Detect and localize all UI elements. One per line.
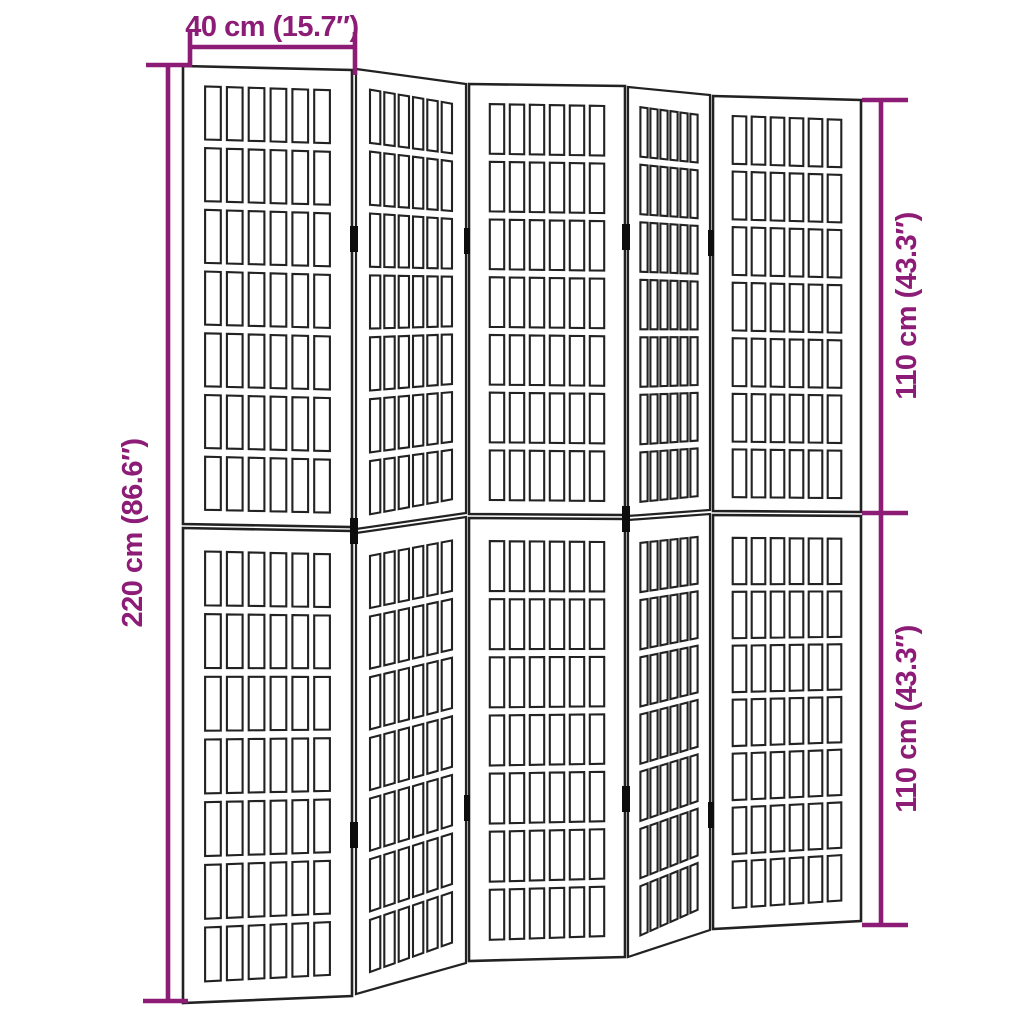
grid-cell: [640, 107, 647, 157]
grid-cell: [227, 149, 243, 203]
grid-cell: [809, 592, 823, 638]
grid-cell: [227, 272, 243, 326]
grid-cell: [828, 175, 842, 223]
grid-cell: [249, 552, 265, 606]
grid-cell: [570, 887, 584, 937]
grid-cell: [828, 697, 842, 743]
grid-cell: [399, 668, 409, 722]
grid-cell: [292, 862, 308, 916]
grid-cell: [292, 553, 308, 606]
grid-cell: [249, 925, 265, 979]
grid-cell: [680, 812, 687, 862]
hinge: [350, 226, 358, 252]
grid-cell: [384, 276, 394, 329]
panel-1: [183, 66, 352, 1003]
grid-cell: [733, 807, 747, 854]
grid-cell: [550, 830, 564, 880]
grid-cell: [249, 801, 265, 855]
grid-cell: [550, 715, 564, 765]
grid-cell: [205, 457, 221, 510]
grid-cell: [650, 654, 657, 704]
grid-cell: [670, 539, 677, 588]
grid-cell: [550, 888, 564, 938]
grid-cell: [314, 677, 330, 730]
grid-cell: [510, 541, 524, 591]
grid-cell: [271, 677, 287, 730]
grid-cell: [399, 215, 409, 267]
grid-cell: [771, 228, 785, 276]
grid-cell: [370, 796, 380, 851]
panel-4: [628, 87, 710, 957]
hinge: [350, 518, 358, 544]
grid-cell: [670, 816, 677, 867]
grid-cell: [809, 856, 823, 903]
grid-cell: [370, 735, 380, 790]
grid-cell: [640, 165, 647, 215]
grid-cell: [249, 396, 265, 449]
grid-cell: [314, 800, 330, 853]
grid-cell: [227, 926, 243, 980]
grid-cell: [690, 754, 697, 803]
grid-cell: [570, 542, 584, 592]
grid-cell: [271, 800, 287, 854]
grid-cell: [427, 100, 437, 152]
grid-cell: [530, 541, 544, 591]
grid-cell: [828, 855, 842, 901]
grid-cell: [752, 753, 766, 800]
grid-cell: [427, 661, 437, 714]
grid-cell: [490, 450, 504, 500]
grid-cell: [530, 451, 544, 501]
grid-cell: [733, 283, 747, 331]
grid-cell: [370, 916, 380, 972]
grid-cell: [442, 334, 452, 384]
grid-cell: [590, 394, 604, 444]
grid-cell: [790, 173, 804, 221]
grid-cell: [790, 751, 804, 797]
grid-cell: [690, 114, 697, 163]
total-height-dimension-label: 220 cm (86.6″): [117, 438, 149, 627]
grid-cell: [809, 285, 823, 333]
grid-cell: [510, 335, 524, 385]
grid-cell: [790, 395, 804, 443]
grid-cell: [442, 775, 452, 829]
grid-cell: [690, 646, 697, 695]
grid-cell: [660, 280, 667, 329]
grid-cell: [530, 657, 544, 707]
grid-cell: [790, 698, 804, 744]
grid-cell: [510, 889, 524, 939]
grid-cell: [790, 857, 804, 904]
grid-cell: [530, 335, 544, 385]
grid-cell: [314, 213, 330, 266]
grid-cell: [690, 448, 697, 497]
grid-cell: [809, 450, 823, 498]
grid-cell: [292, 923, 308, 977]
grid-cell: [510, 657, 524, 707]
grid-cell: [292, 459, 308, 512]
grid-cell: [227, 739, 243, 793]
grid-cell: [771, 698, 785, 744]
grid-cell: [752, 538, 766, 584]
grid-cell: [828, 285, 842, 333]
grid-cell: [733, 394, 747, 442]
grid-cell: [670, 650, 677, 699]
grid-cell: [399, 336, 409, 388]
grid-cell: [442, 892, 452, 946]
grid-cell: [427, 276, 437, 327]
grid-cell: [384, 336, 394, 389]
grid-cell: [650, 597, 657, 647]
grid-cell: [650, 394, 657, 444]
grid-cell: [249, 615, 265, 669]
grid-cell: [771, 645, 785, 691]
grid-cell: [790, 538, 804, 584]
grid-cell: [530, 715, 544, 765]
grid-cell: [442, 599, 452, 652]
grid-cell: [733, 116, 747, 164]
hinge: [708, 802, 714, 828]
grid-cell: [790, 592, 804, 638]
grid-cell: [510, 773, 524, 823]
grid-cell: [828, 230, 842, 278]
grid-cell: [314, 398, 330, 451]
grid-cell: [205, 552, 221, 606]
grid-cell: [490, 599, 504, 649]
grid-cell: [510, 831, 524, 881]
grid-cell: [650, 879, 657, 931]
grid-cell: [670, 337, 677, 386]
grid-cell: [590, 106, 604, 156]
grid-cell: [670, 281, 677, 330]
grid-cell: [809, 697, 823, 743]
grid-cell: [271, 212, 287, 265]
grid-cell: [828, 591, 842, 637]
grid-cell: [427, 779, 437, 833]
grid-cell: [442, 392, 452, 443]
grid-cell: [809, 229, 823, 277]
grid-cell: [510, 104, 524, 154]
grid-cell: [670, 168, 677, 217]
grid-cell: [442, 541, 452, 594]
grid-cell: [384, 791, 394, 846]
grid-cell: [640, 599, 647, 649]
grid-cell: [690, 170, 697, 219]
grid-cell: [399, 95, 409, 148]
grid-cell: [570, 772, 584, 822]
grid-cell: [399, 907, 409, 962]
grid-cell: [227, 457, 243, 510]
grid-cell: [771, 394, 785, 442]
grid-cell: [314, 459, 330, 512]
grid-cell: [490, 277, 504, 327]
grid-cell: [227, 864, 243, 918]
grid-cell: [205, 272, 221, 326]
grid-cell: [590, 542, 604, 592]
grid-cell: [590, 887, 604, 937]
grid-cell: [490, 541, 504, 591]
grid-cell: [690, 809, 697, 859]
grid-cell: [660, 540, 667, 589]
grid-cell: [490, 773, 504, 823]
grid-cell: [790, 284, 804, 332]
grid-cell: [640, 395, 647, 445]
grid-cell: [370, 214, 380, 268]
grid-cell: [640, 542, 647, 592]
grid-cell: [314, 861, 330, 914]
grid-cell: [292, 336, 308, 389]
grid-cell: [660, 652, 667, 702]
diagram-canvas: 40 cm (15.7″) 220 cm (86.6″) 110 cm (43.…: [0, 0, 1024, 1024]
grid-cell: [752, 283, 766, 331]
grid-cell: [809, 803, 823, 849]
grid-cell: [752, 699, 766, 746]
grid-cell: [550, 393, 564, 443]
grid-cell: [399, 608, 409, 662]
grid-cell: [590, 714, 604, 764]
grid-cell: [650, 541, 657, 591]
grid-cell: [670, 871, 677, 922]
grid-cell: [399, 396, 409, 449]
grid-cell: [752, 450, 766, 498]
grid-cell: [752, 394, 766, 442]
grid-cell: [690, 281, 697, 329]
grid-cell: [733, 699, 747, 746]
grid-cell: [292, 800, 308, 853]
grid-cell: [399, 456, 409, 509]
grid-cell: [227, 552, 243, 606]
grid-cell: [413, 335, 423, 387]
grid-cell: [771, 284, 785, 332]
grid-cell: [570, 394, 584, 444]
grid-cell: [399, 847, 409, 902]
grid-cell: [590, 657, 604, 707]
grid-cell: [314, 151, 330, 204]
grid-cell: [370, 460, 380, 515]
grid-cell: [249, 334, 265, 387]
grid-cell: [370, 398, 380, 452]
grid-cell: [660, 167, 667, 216]
hinge: [464, 795, 470, 821]
grid-cell: [771, 450, 785, 498]
grid-cell: [640, 826, 647, 878]
grid-cell: [660, 394, 667, 443]
grid-cell: [205, 864, 221, 918]
grid-cell: [550, 163, 564, 213]
grid-cell: [413, 724, 423, 778]
grid-cell: [650, 823, 657, 874]
grid-cell: [650, 337, 657, 386]
grid-cell: [570, 278, 584, 328]
grid-cell: [292, 151, 308, 204]
grid-cell: [205, 677, 221, 731]
grid-cell: [510, 715, 524, 765]
grid-cell: [570, 715, 584, 765]
grid-cell: [530, 278, 544, 328]
grid-cell: [690, 591, 697, 639]
grid-cell: [205, 86, 221, 139]
grid-cell: [640, 337, 647, 387]
grid-cell: [271, 150, 287, 204]
grid-cell: [384, 214, 394, 267]
grid-cell: [640, 280, 647, 330]
grid-cell: [530, 162, 544, 212]
grid-cell: [650, 223, 657, 272]
grid-cell: [384, 92, 394, 146]
grid-cell: [590, 829, 604, 879]
grid-cell: [530, 773, 544, 823]
grid-cell: [660, 110, 667, 160]
grid-cell: [670, 594, 677, 643]
grid-cell: [399, 276, 409, 328]
grid-cell: [271, 615, 287, 668]
grid-cell: [640, 713, 647, 764]
grid-cell: [314, 922, 330, 976]
grid-cell: [205, 927, 221, 982]
grid-cell: [384, 458, 394, 512]
grid-cell: [590, 772, 604, 822]
grid-cell: [384, 731, 394, 786]
grid-cell: [413, 665, 423, 719]
grid-cell: [550, 336, 564, 386]
grid-cell: [640, 770, 647, 821]
grid-cell: [490, 220, 504, 270]
grid-cell: [752, 117, 766, 165]
grid-cell: [427, 217, 437, 268]
grid-cell: [550, 772, 564, 822]
grid-cell: [670, 224, 677, 273]
grid-cell: [680, 337, 687, 385]
grid-cell: [510, 599, 524, 649]
grid-cell: [271, 862, 287, 916]
grid-cell: [249, 273, 265, 327]
grid-cell: [680, 449, 687, 498]
grid-cell: [370, 152, 380, 206]
grid-cell: [384, 551, 394, 605]
grid-cell: [205, 210, 221, 263]
grid-cell: [590, 279, 604, 329]
grid-cell: [771, 752, 785, 799]
grid-cell: [510, 278, 524, 328]
grid-cell: [205, 614, 221, 668]
grid-cell: [442, 716, 452, 769]
grid-cell: [427, 543, 437, 596]
grid-cell: [442, 658, 452, 711]
grid-cell: [570, 599, 584, 649]
grid-cell: [733, 227, 747, 275]
panel-3: [469, 84, 625, 961]
grid-cell: [660, 764, 667, 815]
grid-cell: [752, 860, 766, 907]
grid-cell: [550, 451, 564, 501]
grid-cell: [227, 211, 243, 264]
grid-cell: [733, 449, 747, 497]
grid-cell: [271, 924, 287, 978]
room-divider-dimension-diagram: 40 cm (15.7″) 220 cm (86.6″) 110 cm (43.…: [0, 0, 1024, 1024]
grid-cell: [828, 802, 842, 848]
grid-cell: [249, 677, 265, 731]
grid-cell: [790, 339, 804, 387]
hinge: [350, 822, 358, 848]
grid-cell: [660, 875, 667, 926]
grid-cell: [733, 646, 747, 693]
grid-cell: [490, 162, 504, 212]
grid-cell: [790, 450, 804, 498]
grid-cell: [809, 538, 823, 584]
grid-cell: [680, 113, 687, 162]
grid-cell: [490, 104, 504, 154]
grid-cell: [680, 393, 687, 442]
grid-cell: [550, 105, 564, 155]
grid-cell: [733, 172, 747, 220]
grid-cell: [442, 834, 452, 888]
grid-cell: [292, 274, 308, 327]
grid-cell: [530, 888, 544, 938]
grid-cell: [490, 889, 504, 939]
grid-cell: [271, 553, 287, 607]
grid-cell: [227, 334, 243, 388]
grid-cell: [413, 546, 423, 599]
grid-cell: [427, 335, 437, 386]
grid-cell: [399, 549, 409, 602]
grid-cell: [370, 275, 380, 328]
grid-cell: [384, 852, 394, 907]
grid-cell: [205, 148, 221, 202]
grid-cell: [314, 615, 330, 668]
grid-cell: [670, 111, 677, 160]
grid-cell: [271, 273, 287, 326]
grid-cell: [828, 644, 842, 690]
grid-cell: [752, 228, 766, 276]
grid-cell: [660, 224, 667, 273]
grid-cell: [427, 838, 437, 892]
grid-cell: [752, 645, 766, 691]
grid-cell: [227, 614, 243, 668]
grid-cell: [271, 397, 287, 450]
grid-cell: [413, 97, 423, 150]
grid-cell: [314, 275, 330, 328]
grid-cell: [413, 783, 423, 837]
grid-cell: [809, 644, 823, 690]
folding-screen: [183, 66, 861, 1003]
grid-cell: [399, 728, 409, 782]
grid-cell: [550, 542, 564, 592]
grid-cell: [828, 395, 842, 443]
grid-cell: [690, 226, 697, 274]
grid-cell: [752, 172, 766, 220]
grid-cell: [292, 397, 308, 450]
grid-cell: [660, 819, 667, 870]
grid-cell: [292, 615, 308, 668]
grid-cell: [413, 395, 423, 447]
grid-cell: [733, 538, 747, 584]
grid-cell: [680, 757, 687, 807]
grid-cell: [413, 902, 423, 957]
grid-cell: [490, 831, 504, 881]
grid-cell: [809, 340, 823, 388]
grid-cell: [690, 700, 697, 749]
grid-cell: [809, 119, 823, 167]
grid-cell: [399, 155, 409, 208]
grid-cell: [790, 118, 804, 166]
grid-cell: [510, 393, 524, 443]
grid-cell: [249, 863, 265, 917]
grid-cell: [227, 87, 243, 141]
grid-cell: [650, 280, 657, 329]
grid-cell: [690, 393, 697, 441]
grid-cell: [733, 861, 747, 908]
grid-cell: [590, 599, 604, 649]
